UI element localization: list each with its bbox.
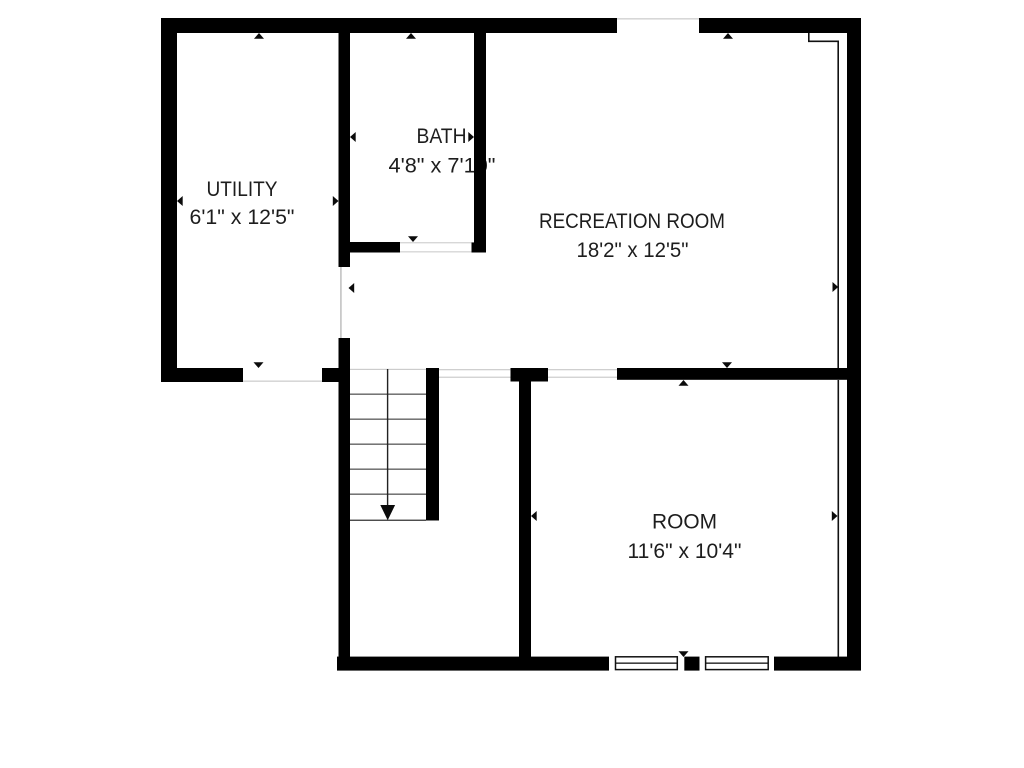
svg-text:BATH: BATH xyxy=(417,124,467,148)
svg-text:RECREATION ROOM: RECREATION ROOM xyxy=(539,209,725,233)
svg-text:6'1" x 12'5": 6'1" x 12'5" xyxy=(190,205,295,229)
svg-text:UTILITY: UTILITY xyxy=(207,177,278,201)
svg-text:ROOM: ROOM xyxy=(652,510,717,534)
svg-text:18'2" x 12'5": 18'2" x 12'5" xyxy=(577,238,689,262)
svg-text:11'6" x 10'4": 11'6" x 10'4" xyxy=(628,539,742,563)
